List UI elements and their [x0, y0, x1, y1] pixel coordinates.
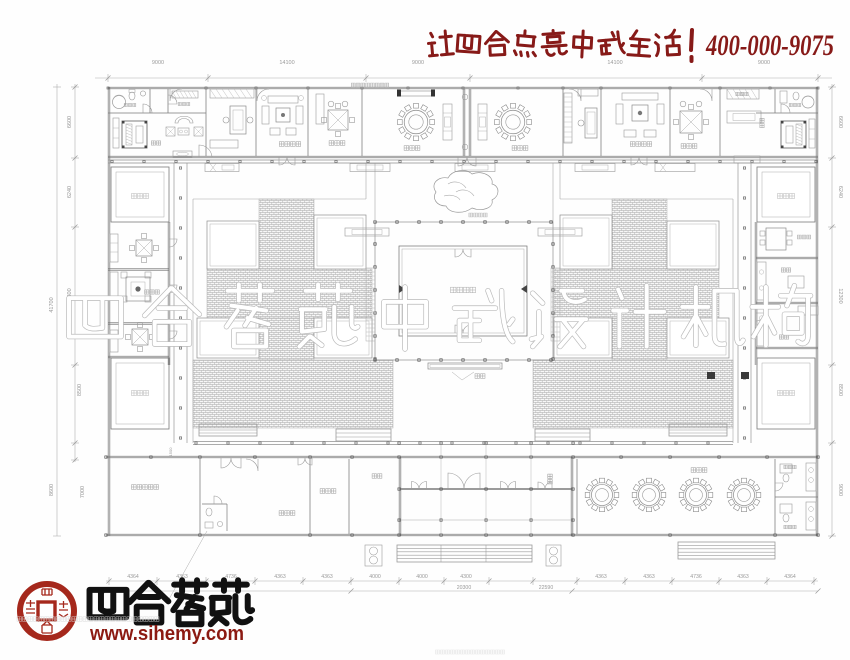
svg-text:4000: 4000 [369, 574, 381, 580]
svg-text:4364: 4364 [127, 574, 139, 580]
svg-text:6600: 6600 [67, 116, 73, 128]
svg-text:www.sihemy.com: www.sihemy.com [89, 623, 244, 645]
svg-text:4736: 4736 [225, 574, 237, 580]
svg-text:14100: 14100 [607, 60, 622, 66]
svg-text:6240: 6240 [837, 186, 843, 198]
svg-text:400-000-9075: 400-000-9075 [705, 29, 834, 62]
svg-text:4363: 4363 [321, 574, 333, 580]
svg-text:4363: 4363 [737, 574, 749, 580]
svg-text:4300: 4300 [460, 574, 472, 580]
svg-text:4736: 4736 [690, 574, 702, 580]
svg-text:41700: 41700 [49, 297, 55, 312]
svg-text:7000: 7000 [80, 486, 86, 498]
svg-text:12300: 12300 [837, 288, 843, 303]
svg-text:6600: 6600 [837, 116, 843, 128]
svg-text:4364: 4364 [784, 574, 796, 580]
svg-text:8500: 8500 [837, 384, 843, 396]
svg-text:1500: 1500 [168, 447, 173, 457]
svg-text:9000: 9000 [412, 60, 424, 66]
svg-text:9000: 9000 [837, 484, 843, 496]
svg-text:4000: 4000 [416, 574, 428, 580]
svg-text:4363: 4363 [595, 574, 607, 580]
svg-text:9000: 9000 [152, 60, 164, 66]
svg-text:14100: 14100 [279, 60, 294, 66]
svg-text:20300: 20300 [457, 585, 472, 591]
svg-text:8600: 8600 [49, 484, 55, 496]
svg-text:22590: 22590 [539, 585, 554, 591]
svg-text:4363: 4363 [643, 574, 655, 580]
svg-text:8500: 8500 [77, 384, 83, 396]
svg-text:6240: 6240 [67, 186, 73, 198]
svg-text:4363: 4363 [274, 574, 286, 580]
